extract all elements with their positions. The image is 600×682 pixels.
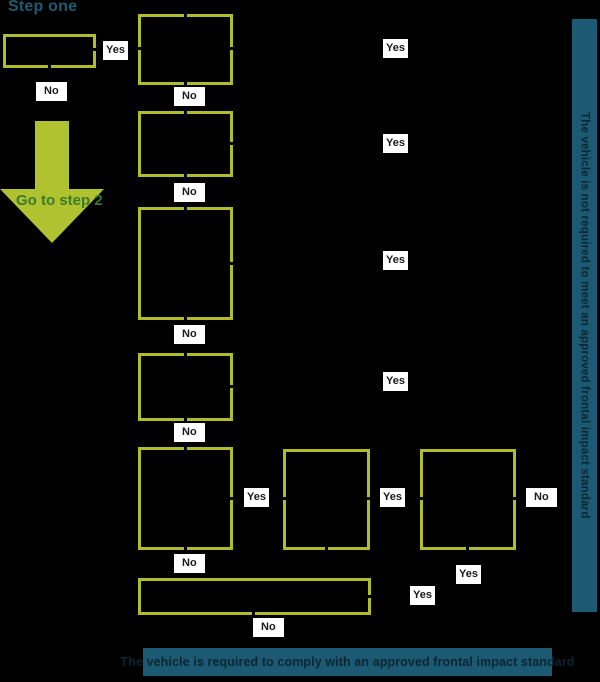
decision-box-1 bbox=[138, 14, 233, 85]
outcome-text-required: The vehicle is required to comply with a… bbox=[120, 655, 574, 669]
connector-tick bbox=[366, 595, 373, 598]
connector-tick bbox=[228, 497, 235, 500]
connector-tick bbox=[184, 416, 187, 423]
connector-tick bbox=[228, 385, 235, 388]
connector-tick bbox=[184, 108, 187, 115]
yes-label: Yes bbox=[383, 372, 408, 391]
connector-tick bbox=[184, 315, 187, 322]
yes-label: Yes bbox=[383, 39, 408, 58]
connector-tick bbox=[184, 204, 187, 211]
outcome-bar-required: The vehicle is required to comply with a… bbox=[143, 648, 552, 676]
no-label: No bbox=[174, 87, 205, 106]
connector-tick bbox=[228, 47, 235, 50]
connector-tick bbox=[184, 80, 187, 87]
yes-label: Yes bbox=[383, 251, 408, 270]
connector-tick bbox=[365, 497, 372, 500]
connector-tick bbox=[325, 545, 328, 552]
decision-box-2 bbox=[138, 111, 233, 177]
connector-tick bbox=[280, 497, 287, 500]
connector-tick bbox=[184, 11, 187, 18]
connector-tick bbox=[48, 63, 51, 70]
no-label: No bbox=[174, 423, 205, 442]
connector-tick bbox=[466, 545, 469, 552]
connector-tick bbox=[184, 545, 187, 552]
outcome-text-not-required: The vehicle is not required to meet an a… bbox=[579, 112, 591, 519]
connector-tick bbox=[511, 497, 518, 500]
decision-box-4 bbox=[138, 353, 233, 421]
yes-label: Yes bbox=[244, 488, 269, 507]
no-label: No bbox=[36, 82, 67, 101]
outcome-bar-not-required: The vehicle is not required to meet an a… bbox=[572, 19, 597, 612]
page-title: Step one bbox=[8, 0, 77, 16]
no-label: No bbox=[174, 554, 205, 573]
connector-tick bbox=[184, 350, 187, 357]
down-arrow-icon bbox=[0, 121, 104, 244]
connector-tick bbox=[93, 48, 100, 51]
go-to-step-2-label: Go to step 2 bbox=[16, 192, 88, 209]
flowchart-step-one: Step one Go to step 2 Yes No No No No No bbox=[0, 0, 600, 682]
connector-tick bbox=[228, 142, 235, 145]
yes-label: Yes bbox=[380, 488, 405, 507]
no-label: No bbox=[253, 618, 284, 637]
connector-tick bbox=[252, 610, 255, 617]
connector-tick bbox=[228, 262, 235, 265]
connector-tick bbox=[184, 444, 187, 451]
decision-box-5 bbox=[138, 447, 233, 550]
yes-label: Yes bbox=[383, 134, 408, 153]
yes-label: Yes bbox=[456, 565, 481, 584]
decision-box-7 bbox=[420, 449, 516, 550]
decision-box-6 bbox=[283, 449, 370, 550]
no-label: No bbox=[174, 183, 205, 202]
connector-tick bbox=[417, 497, 424, 500]
yes-label: Yes bbox=[410, 586, 435, 605]
no-label: No bbox=[174, 325, 205, 344]
connector-tick bbox=[135, 47, 142, 50]
no-label: No bbox=[526, 488, 557, 507]
decision-box-3 bbox=[138, 207, 233, 320]
yes-label: Yes bbox=[103, 41, 128, 60]
connector-tick bbox=[184, 172, 187, 179]
